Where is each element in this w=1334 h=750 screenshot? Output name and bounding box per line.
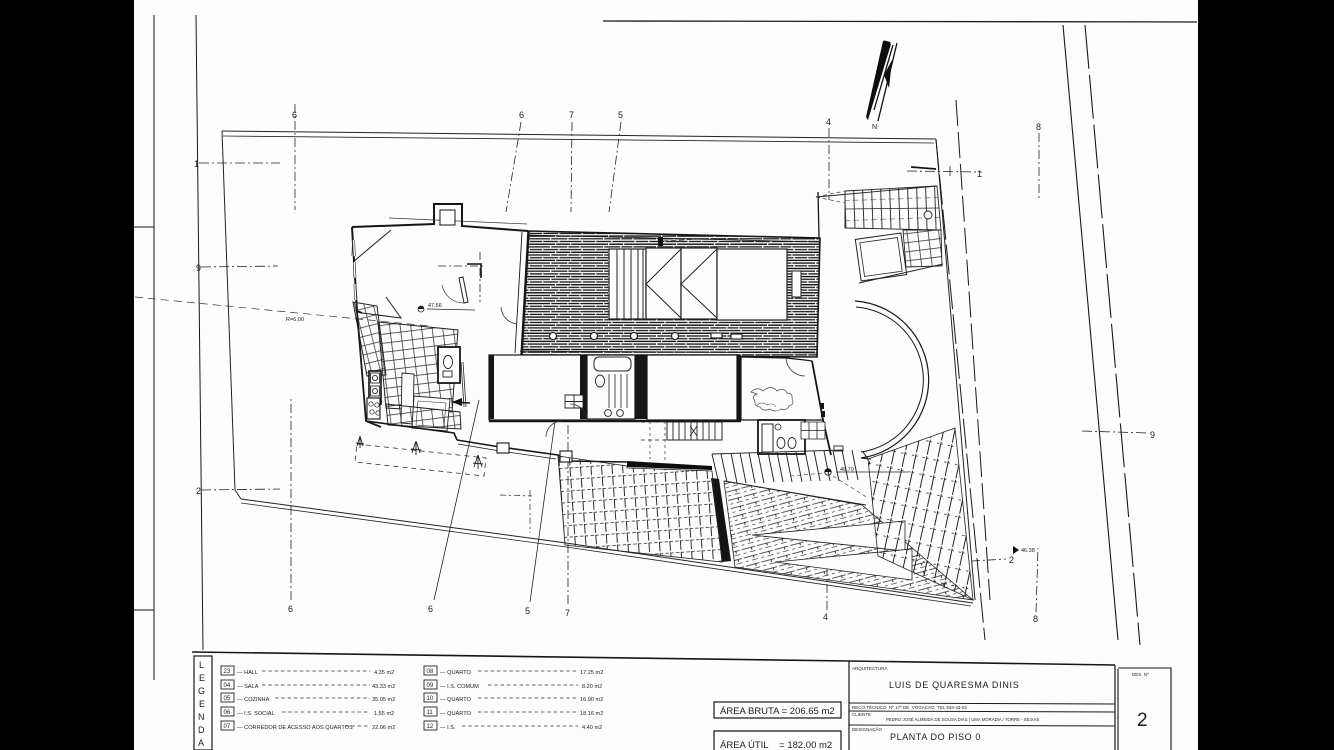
svg-text:4.40 m2: 4.40 m2	[582, 725, 602, 731]
svg-text:LUIS DE QUARESMA DINIS: LUIS DE QUARESMA DINIS	[889, 680, 1019, 690]
svg-text:9: 9	[1150, 430, 1155, 440]
svg-text:6: 6	[292, 110, 297, 120]
svg-text:8: 8	[1036, 122, 1041, 132]
svg-text:5: 5	[618, 110, 623, 120]
svg-text:L: L	[199, 660, 204, 670]
svg-text:— SALA: — SALA	[237, 684, 259, 690]
svg-text:ÁREA BRUTA = 206.65 m2: ÁREA BRUTA = 206.65 m2	[720, 706, 835, 717]
svg-text:05: 05	[224, 696, 231, 702]
svg-text:43.33 m2: 43.33 m2	[372, 684, 395, 690]
svg-text:2: 2	[1137, 710, 1148, 731]
svg-text:N: N	[198, 712, 205, 722]
svg-text:9: 9	[196, 263, 201, 273]
svg-text:1: 1	[194, 159, 199, 169]
svg-text:— I.S.: — I.S.	[440, 725, 456, 731]
svg-text:22.06 m2: 22.06 m2	[372, 725, 395, 731]
svg-text:— I.S. SOCIAL: — I.S. SOCIAL	[237, 711, 275, 717]
svg-text:— HALL: — HALL	[237, 670, 258, 676]
svg-text:DESIGNAÇÃO: DESIGNAÇÃO	[852, 726, 883, 732]
svg-text:6: 6	[428, 604, 433, 614]
svg-text:8: 8	[1033, 614, 1038, 624]
svg-text:16.90 m2: 16.90 m2	[580, 697, 603, 703]
svg-text:6: 6	[519, 110, 524, 120]
svg-text:06: 06	[224, 710, 231, 716]
svg-text:2: 2	[1009, 555, 1014, 565]
svg-text:— QUARTO: — QUARTO	[440, 711, 472, 717]
svg-text:23: 23	[224, 669, 231, 675]
svg-text:17.25 m2: 17.25 m2	[580, 670, 603, 676]
svg-text:DES. Nº: DES. Nº	[1132, 672, 1149, 677]
svg-text:04: 04	[224, 683, 231, 689]
svg-text:10: 10	[427, 696, 434, 702]
svg-text:G: G	[198, 686, 205, 696]
svg-text:08: 08	[427, 669, 434, 675]
svg-text:7: 7	[565, 608, 570, 618]
svg-text:D: D	[198, 725, 205, 735]
svg-text:— COZINHA: — COZINHA	[237, 697, 270, 703]
svg-text:4: 4	[823, 612, 828, 622]
svg-text:A: A	[198, 738, 204, 748]
svg-text:18.16 m2: 18.16 m2	[580, 711, 603, 717]
svg-text:09: 09	[427, 683, 434, 689]
svg-text:PEDRO JOSÉ ALMEIDA DE SOUSA DI: PEDRO JOSÉ ALMEIDA DE SOUSA DIAS | UMA M…	[886, 717, 1039, 722]
svg-text:4: 4	[826, 117, 831, 127]
svg-text:8.20 m2: 8.20 m2	[582, 684, 602, 690]
svg-text:35.05 m2: 35.05 m2	[372, 697, 395, 703]
svg-text:E: E	[199, 673, 205, 683]
svg-text:— QUARTO: — QUARTO	[440, 697, 472, 703]
svg-text:1.55 m2: 1.55 m2	[374, 711, 394, 717]
svg-text:ÁREA ÚTIL = 182.00 m2: ÁREA ÚTIL = 182.00 m2	[720, 740, 832, 750]
svg-text:11: 11	[427, 710, 434, 716]
svg-text:4.35 m2: 4.35 m2	[374, 670, 394, 676]
svg-text:N: N	[872, 124, 877, 131]
svg-text:— I.S. COMUM: — I.S. COMUM	[440, 684, 479, 690]
svg-text:6: 6	[288, 604, 293, 614]
svg-text:47.56: 47.56	[428, 303, 442, 309]
svg-text:ARQUITECTURA: ARQUITECTURA	[852, 666, 888, 671]
svg-text:2: 2	[196, 486, 201, 496]
svg-text:7: 7	[569, 110, 574, 120]
svg-text:CLIENTE: CLIENTE	[852, 712, 871, 717]
svg-text:— CORREDOR DE ACESSO AOS QUART: — CORREDOR DE ACESSO AOS QUARTOS	[237, 725, 353, 731]
svg-text:12: 12	[427, 724, 434, 730]
svg-text:RECO.TÉCNICO Nº 17º DE VOGAC: RECO.TÉCNICO Nº 17º DE VOGACAO TEL 934-4…	[852, 704, 967, 710]
svg-text:1: 1	[977, 169, 982, 179]
svg-text:— QUARTO: — QUARTO	[440, 670, 472, 676]
svg-text:5: 5	[525, 606, 530, 616]
svg-text:PLANTA DO PISO 0: PLANTA DO PISO 0	[890, 732, 981, 742]
svg-text:07: 07	[224, 724, 231, 730]
svg-text:46.38: 46.38	[1021, 548, 1035, 554]
svg-text:R=6.00: R=6.00	[286, 317, 304, 323]
svg-text:E: E	[199, 699, 205, 709]
